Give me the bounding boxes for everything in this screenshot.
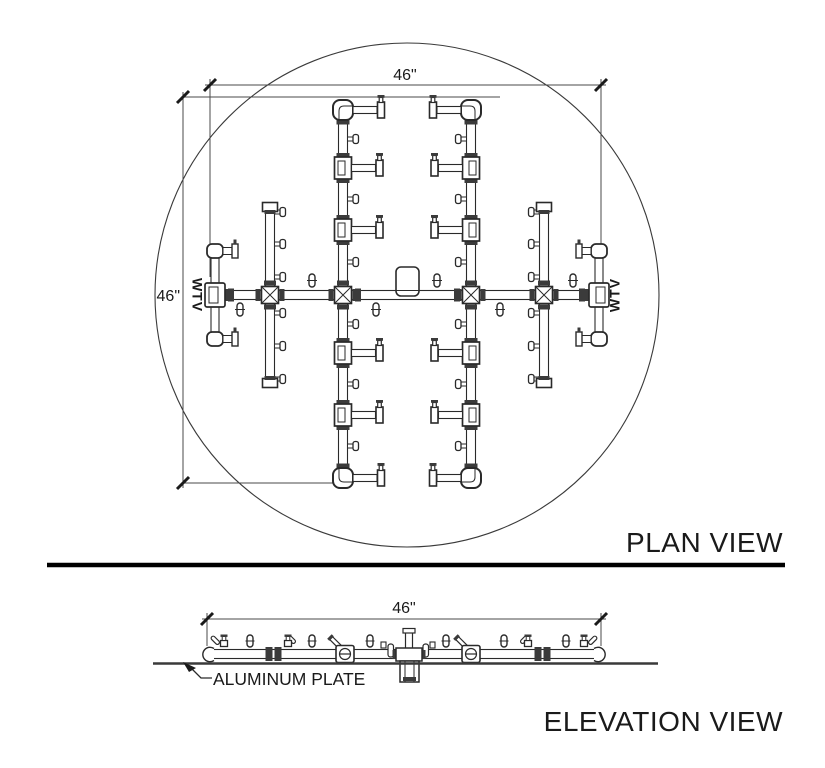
plan-view-title: PLAN VIEW — [626, 527, 783, 558]
elevation-view-title: ELEVATION VIEW — [544, 706, 783, 737]
elevation-view: 46" — [153, 600, 783, 737]
plan-dim-width-text: 46" — [393, 67, 416, 84]
center-riser-fitting — [393, 629, 426, 683]
manifold-assembly — [205, 95, 609, 488]
center-inlet-fitting — [396, 267, 419, 296]
plan-dim-height-text: 46" — [157, 288, 180, 305]
aluminum-plate-label: ALUMINUM PLATE — [213, 669, 365, 689]
branch-pipe-outer-right — [529, 203, 559, 388]
wtv-marking-right: WTV — [607, 278, 623, 312]
branch-pipe-outer-left — [256, 203, 286, 388]
plan-view: 46" 46" — [155, 43, 783, 558]
wtv-marking-left: WTV — [189, 278, 205, 312]
drawing-sheet: 46" 46" — [0, 0, 825, 768]
elevation-dim-width-text: 46" — [392, 600, 415, 617]
